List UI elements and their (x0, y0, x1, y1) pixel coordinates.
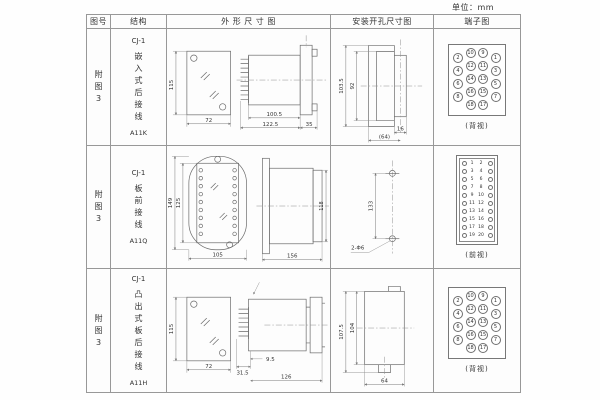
front-view: 115 72 (169, 297, 231, 373)
install-drawing-row2: 133 2-Φ6 (331, 146, 434, 269)
terminal-circle: 17 (478, 100, 488, 110)
hatch-mark (201, 318, 210, 326)
outline-drawing-svg: 115 72 31.5 (167, 269, 330, 393)
terminal-circle (488, 225, 493, 230)
terminal-circle (462, 177, 467, 182)
terminal-diagram: 246810121416189111315171357 (背视) (448, 287, 506, 374)
dim-label: 149 (168, 197, 174, 208)
terminal-pins (239, 309, 249, 336)
terminal-box: 246810121416189111315171357 (448, 44, 506, 116)
terminal-circle (488, 169, 493, 174)
terminal-box: 1234567891011121314151617181920 (456, 155, 498, 245)
hatch-mark (210, 336, 219, 344)
terminal-circle (462, 225, 467, 230)
model-label: CJ-1 (132, 37, 146, 45)
dim-label: 92 (350, 82, 356, 89)
install-drawing-row3: 107.5 104 64 (331, 269, 434, 393)
outline-drawing-svg: 149 125 105 118 (167, 146, 330, 269)
terminal-number: 16 (476, 216, 486, 224)
terminal-circle: 7 (491, 335, 501, 345)
terminal-circle (462, 193, 467, 198)
terminal-circle: 13 (478, 74, 488, 84)
outline-drawing-row3: 115 72 31.5 (167, 269, 331, 393)
terminal-circle: 18 (466, 100, 476, 110)
hatch-mark (201, 72, 210, 80)
terminal-circle: 13 (478, 317, 488, 327)
terminal-circle: 5 (491, 322, 501, 332)
terminal-circle (462, 233, 467, 238)
fig-no-row2: 附图3 (87, 146, 111, 269)
terminal-circle (488, 209, 493, 214)
install-drawing-svg: 103.5 92 16 (64) (331, 29, 433, 146)
model-label: CJ-1 (132, 275, 146, 283)
terminal-circle (462, 217, 467, 222)
terminal-cell-row3: 246810121416189111315171357 (背视) (434, 269, 521, 393)
structure-row2: CJ-1 板前接线 A11Q (111, 146, 167, 269)
top-tab (388, 286, 400, 291)
terminal-circle: 8 (453, 92, 463, 102)
terminal-circle (462, 161, 467, 166)
header-structure: 结构 (111, 15, 167, 29)
terminal-circle (488, 217, 493, 222)
type-code: A11H (130, 379, 148, 387)
structure-row1: CJ-1 嵌入式后接线 A11K (111, 29, 167, 146)
install-drawing-svg: 133 2-Φ6 (331, 146, 433, 269)
terminal-circle: 15 (478, 87, 488, 97)
terminal-circle (488, 233, 493, 238)
structure-desc: 板前接线 (135, 183, 143, 231)
view-caption: (背视) (465, 364, 488, 374)
install-drawing-svg: 107.5 104 64 (331, 269, 433, 393)
terminal-number: 12 (476, 200, 486, 208)
terminal-circle: 3 (491, 309, 501, 319)
dim-label: 107.5 (339, 324, 345, 340)
terminal-box: 246810121416189111315171357 (448, 287, 506, 359)
terminal-circle: 2 (453, 296, 463, 306)
outline-drawing-row2: 149 125 105 118 (167, 146, 331, 269)
terminal-circle: 3 (491, 66, 501, 76)
side-view: 118 156 (256, 158, 329, 261)
terminal-circle: 17 (478, 343, 488, 353)
terminal-number: 8 (476, 184, 486, 192)
terminal-circle: 11 (478, 61, 488, 71)
terminal-circle: 7 (491, 92, 501, 102)
header-install-hole-dims: 安装开孔尺寸图 (331, 15, 434, 29)
dim-label: 31.5 (236, 370, 248, 376)
terminal-circle: 16 (466, 330, 476, 340)
terminal-circle (488, 177, 493, 182)
terminal-circle: 5 (491, 79, 501, 89)
terminal-circle: 16 (466, 87, 476, 97)
install-drawing-row1: 103.5 92 16 (64) (331, 29, 434, 146)
fig-no-text: 附图3 (95, 189, 103, 225)
terminal-circle (488, 161, 493, 166)
terminal-circle: 8 (453, 335, 463, 345)
dim-label: 9.5 (266, 356, 275, 362)
hole-spec-label: 2-Φ6 (351, 245, 365, 251)
outline-drawing-row1: 115 72 100.5 (167, 29, 331, 146)
type-code: A11K (130, 129, 147, 137)
structure-desc: 凸出式板后接线 (135, 289, 143, 373)
side-view: 31.5 9.5 126 (236, 282, 328, 382)
view-caption: (背视) (465, 121, 488, 131)
terminal-number: 20 (476, 232, 486, 240)
dim-label: 126 (281, 374, 292, 380)
dim-label: 35 (306, 121, 313, 127)
manual-page: 单位：mm 图号 结构 外 形 尺 寸 图 安装开孔尺寸图 端子图 附图3 CJ… (0, 0, 600, 400)
dim-label: 72 (205, 117, 212, 123)
dim-label: 118 (319, 201, 325, 210)
fig-no-text: 附图3 (95, 313, 103, 349)
dim-label: 104 (350, 322, 356, 333)
dim-label: (64) (379, 134, 390, 140)
view-caption: (前视) (465, 250, 488, 260)
fig-no-row1: 附图3 (87, 29, 111, 146)
terminal-circle: 1 (491, 53, 501, 63)
dim-label: 122.5 (263, 121, 279, 127)
dim-label: 115 (169, 79, 175, 89)
terminal-circle: 10 (466, 48, 476, 58)
terminal-number: 18 (476, 224, 486, 232)
dim-label: 105 (212, 252, 222, 258)
terminal-number: 10 (476, 192, 486, 200)
terminal-diagram: 246810121416189111315171357 (背视) (448, 44, 506, 131)
model-label: CJ-1 (132, 169, 146, 177)
terminal-number: 14 (476, 208, 486, 216)
dim-label: 125 (176, 197, 182, 207)
terminal-circle: 9 (478, 291, 488, 301)
type-code: A11Q (130, 237, 148, 245)
terminal-diagram: 1234567891011121314151617181920 (前视) (456, 155, 498, 260)
terminal-circle: 11 (478, 304, 488, 314)
dim-label: 115 (169, 323, 175, 333)
terminal-circle: 6 (453, 79, 463, 89)
terminal-circle (488, 193, 493, 198)
side-view: 100.5 122.5 35 (237, 35, 326, 129)
dim-label: 133 (369, 200, 375, 211)
terminal-circle: 14 (466, 317, 476, 327)
terminal-circle (462, 209, 467, 214)
units-label: 单位：mm (452, 2, 494, 13)
front-view: 149 125 105 (168, 156, 247, 260)
terminal-number: 6 (476, 176, 486, 184)
dim-label: 100.5 (267, 111, 283, 117)
terminal-number: 2 (476, 160, 486, 168)
terminal-circle (488, 185, 493, 190)
header-terminal-diagram: 端子图 (434, 15, 521, 29)
terminal-circle: 6 (453, 322, 463, 332)
terminal-circle: 14 (466, 74, 476, 84)
terminal-number: 4 (476, 168, 486, 176)
dim-label: 64 (381, 378, 388, 384)
terminal-circle: 4 (453, 66, 463, 76)
terminal-circle: 9 (478, 48, 488, 58)
terminal-cell-row1: 246810121416189111315171357 (背视) (434, 29, 521, 146)
terminal-circle (462, 169, 467, 174)
dim-label: 156 (287, 253, 298, 259)
header-fig-no: 图号 (87, 15, 111, 29)
terminal-circle (462, 201, 467, 206)
terminal-circle: 1 (491, 296, 501, 306)
dim-label: 103.5 (339, 78, 345, 94)
terminal-circle: 15 (478, 330, 488, 340)
terminal-circle: 12 (466, 304, 476, 314)
dim-label: 16 (397, 126, 404, 132)
header-outline-dims: 外 形 尺 寸 图 (167, 15, 331, 29)
fig-no-text: 附图3 (95, 69, 103, 105)
terminal-circle: 2 (453, 53, 463, 63)
terminal-circle: 12 (466, 61, 476, 71)
structure-desc: 嵌入式后接线 (135, 51, 143, 123)
dim-label: 72 (205, 363, 212, 369)
terminal-circle (488, 201, 493, 206)
hatch-mark (211, 183, 218, 190)
terminal-cell-row2: 1234567891011121314151617181920 (前视) (434, 146, 521, 269)
outline-drawing-svg: 115 72 100.5 (167, 29, 330, 146)
fig-no-row3: 附图3 (87, 269, 111, 393)
terminal-dots (199, 168, 236, 235)
terminal-circle: 10 (466, 291, 476, 301)
drawing-table: 图号 结构 外 形 尺 寸 图 安装开孔尺寸图 端子图 附图3 CJ-1 嵌入式… (86, 14, 521, 393)
hatch-mark (210, 90, 219, 98)
structure-row3: CJ-1 凸出式板后接线 A11H (111, 269, 167, 393)
terminal-pins (241, 59, 249, 99)
terminal-circle (462, 185, 467, 190)
hatch-mark (220, 212, 227, 219)
terminal-circle: 18 (466, 343, 476, 353)
front-view: 115 72 (169, 51, 231, 127)
terminal-circle: 4 (453, 309, 463, 319)
